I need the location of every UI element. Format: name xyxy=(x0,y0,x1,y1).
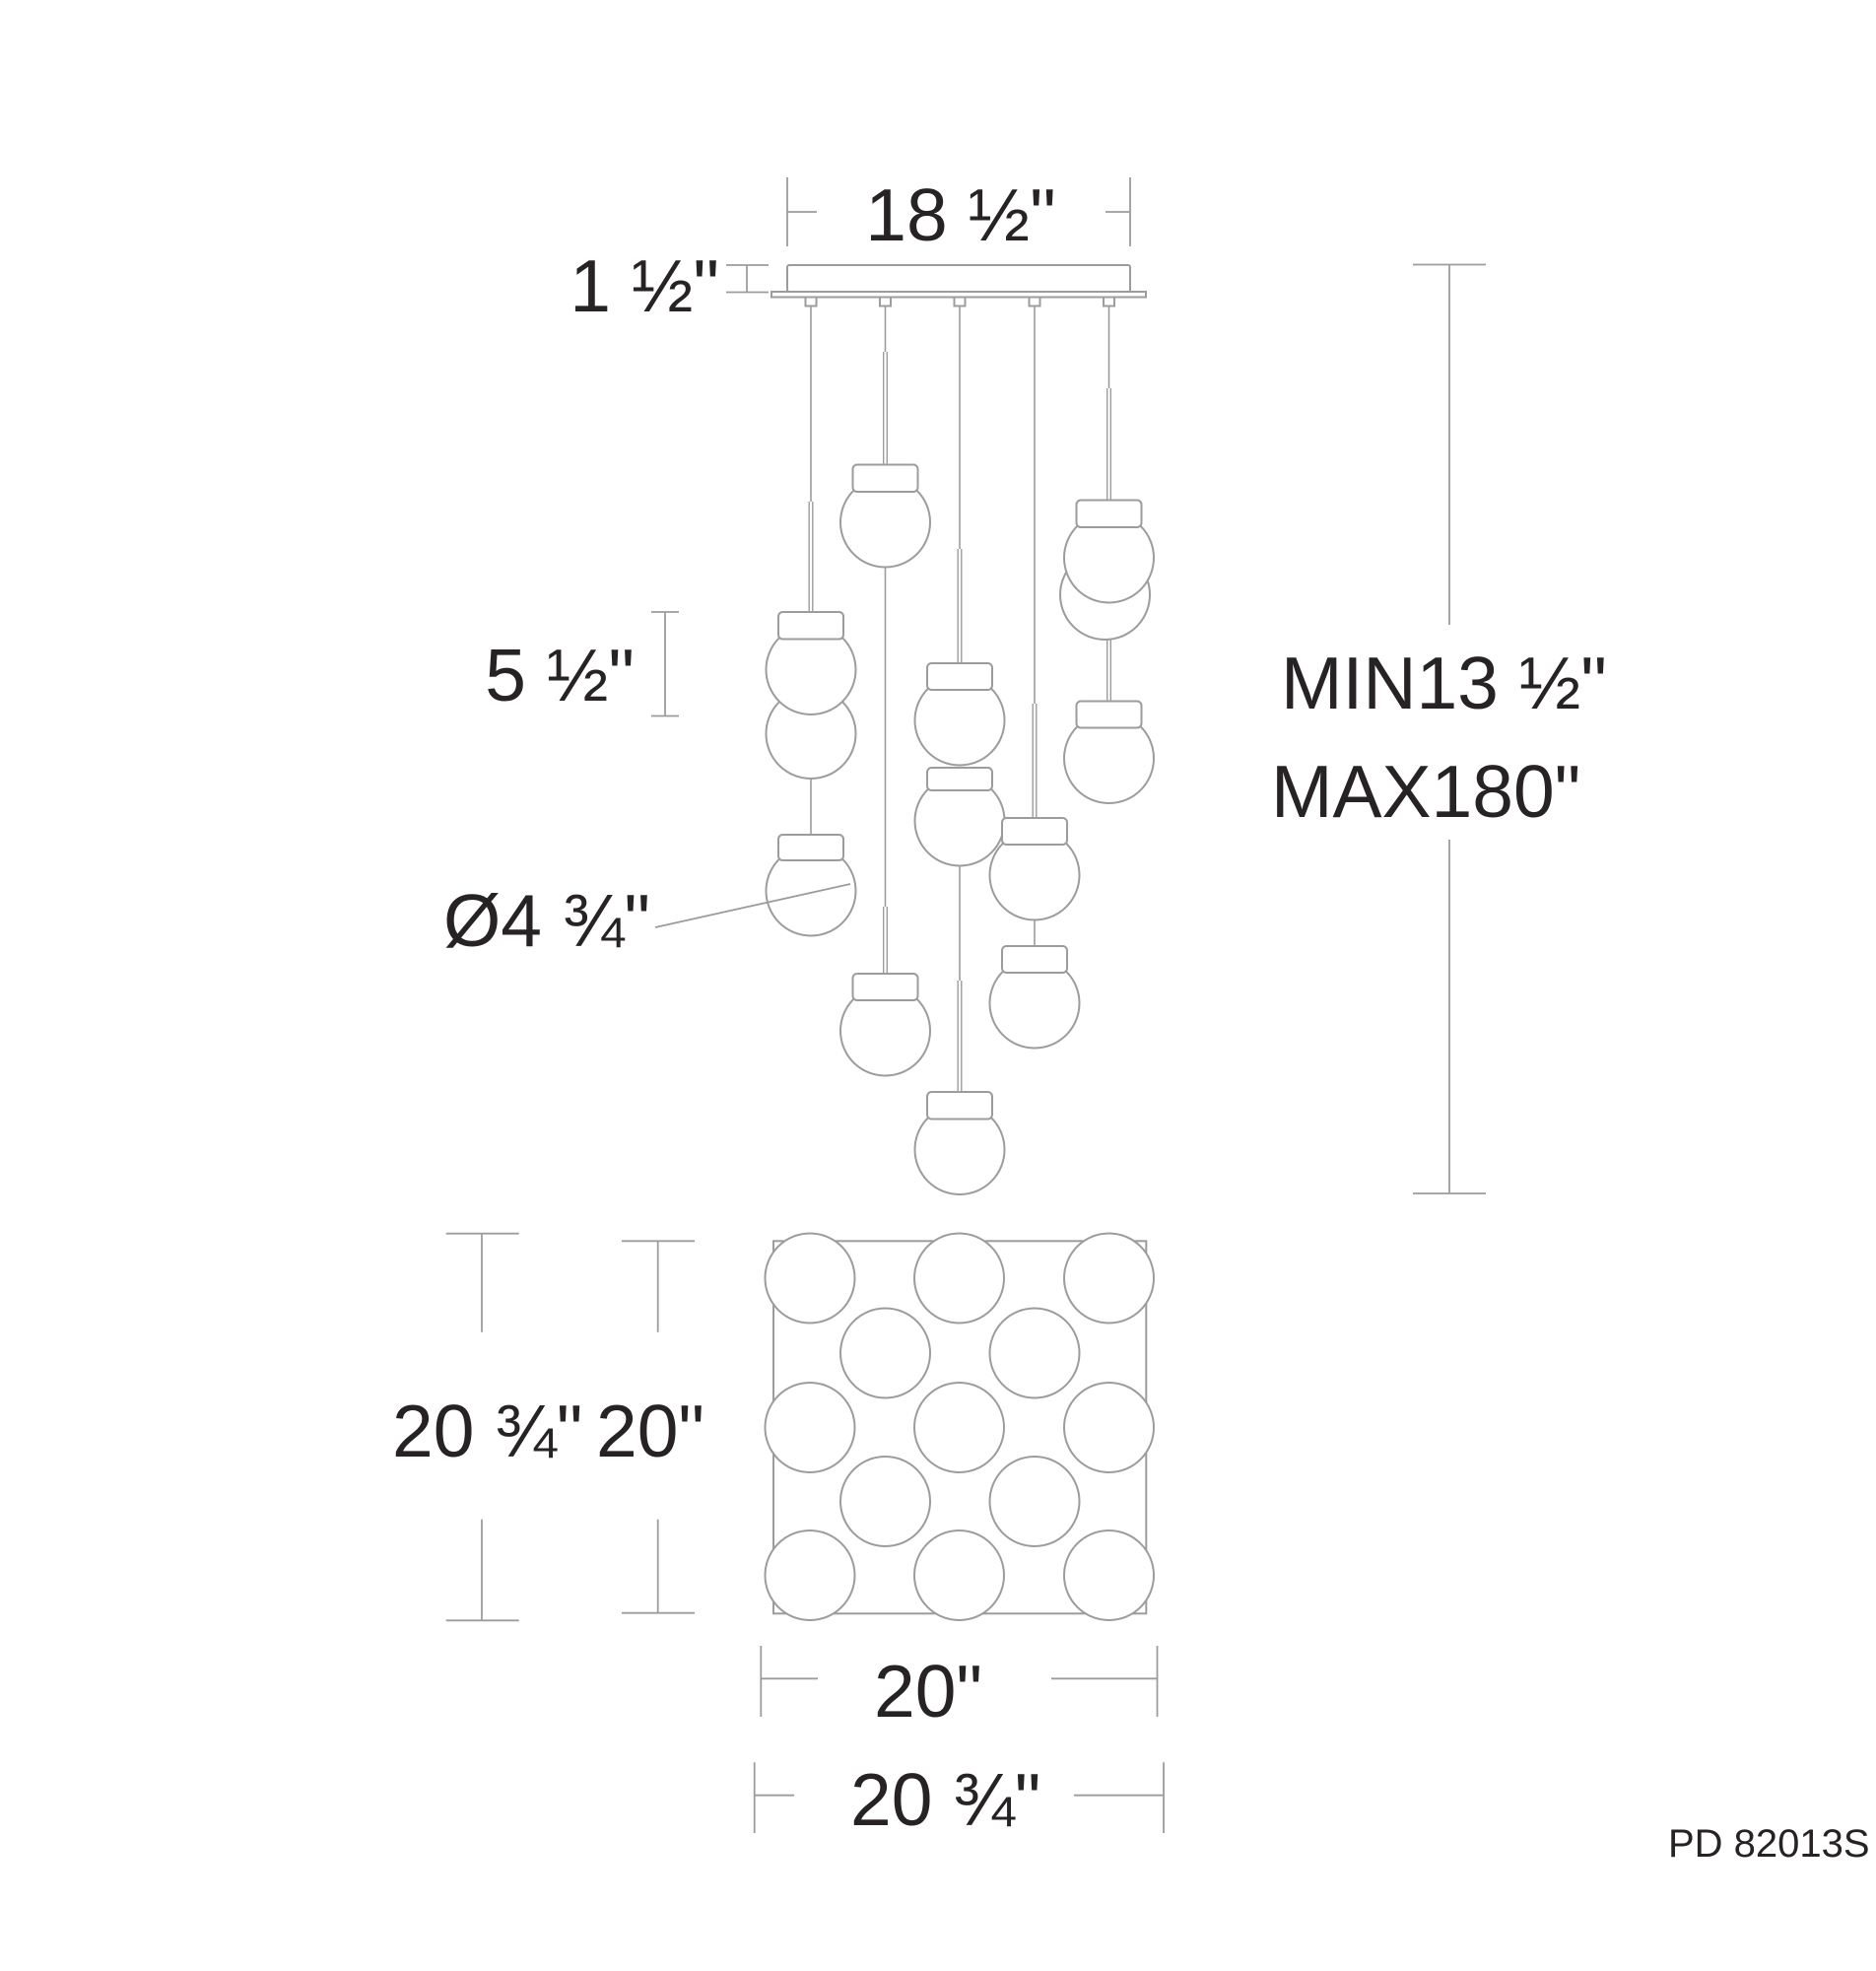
dimension-label-max-drop: MAX180" xyxy=(1271,750,1580,833)
dimension-label-plan-width-inner: 20" xyxy=(874,1650,982,1733)
pendant-single xyxy=(1064,702,1154,804)
dimension-canopy-width: 18 ½" xyxy=(787,173,1130,256)
globe-plan xyxy=(766,1530,855,1620)
canopy-front xyxy=(771,265,1146,306)
pendant-cap xyxy=(1077,702,1142,728)
dimension-canopy-height: 1 ½" xyxy=(569,244,769,327)
dimension-plan-width-outer: 20 ¾" xyxy=(755,1758,1164,1841)
dimension-pendant-height: 5 ½" xyxy=(485,612,679,716)
globe-plan xyxy=(914,1530,1004,1620)
globe-plan xyxy=(914,1234,1004,1324)
part-number: PD 82013S xyxy=(1668,1822,1870,1866)
globe-plan xyxy=(990,1457,1080,1546)
globe-plan xyxy=(1064,1530,1154,1620)
dimension-label-canopy-width: 18 ½" xyxy=(865,173,1055,256)
canopy-body xyxy=(787,265,1130,292)
pendant-cap xyxy=(778,835,843,860)
wire-gripper xyxy=(806,298,817,306)
dimension-label-plan-width-outer: 20 ¾" xyxy=(850,1758,1040,1841)
wire-gripper xyxy=(955,298,966,306)
globe-plan xyxy=(840,1457,930,1546)
pendant-single xyxy=(990,946,1080,1049)
pendant-cap xyxy=(927,768,992,790)
dimension-label-plan-height-outer: 20 ¾" xyxy=(392,1390,582,1472)
pendant-cap xyxy=(1077,501,1142,528)
spec-sheet-page: 18 ½" 1 ½" 5 ½" Ø4 ¾" MIN13 ½" MAX180" xyxy=(0,0,1876,1971)
pendant-cap xyxy=(927,663,992,690)
dimension-label-plan-height-inner: 20" xyxy=(596,1390,704,1472)
pendant-single xyxy=(915,768,1005,866)
globe-plan xyxy=(1064,1383,1154,1472)
globe-plan xyxy=(766,1383,855,1472)
pendant-cap xyxy=(778,612,843,640)
dimension-plan-height-inner: 20" xyxy=(596,1241,704,1612)
pendant-single xyxy=(840,465,930,568)
dimension-label-pendant-height: 5 ½" xyxy=(485,634,635,716)
globe-plan xyxy=(766,1234,855,1324)
pendant-cap xyxy=(853,974,918,1000)
pendant-cap xyxy=(927,1092,992,1120)
dimension-plan-height-outer: 20 ¾" xyxy=(392,1234,582,1621)
dimension-label-globe-diameter: Ø4 ¾" xyxy=(443,879,650,962)
dimension-label-canopy-height: 1 ½" xyxy=(569,244,719,327)
pendant-double xyxy=(767,612,856,779)
globe-plan xyxy=(1064,1234,1154,1324)
wire-gripper xyxy=(880,298,891,306)
globe-plan xyxy=(990,1309,1080,1398)
pendant-cap xyxy=(1002,946,1067,973)
wire-gripper xyxy=(1104,298,1114,306)
dimension-label-min-drop: MIN13 ½" xyxy=(1281,642,1607,724)
pendant-cap xyxy=(853,465,918,493)
wire-gripper xyxy=(1030,298,1040,306)
dimension-plan-width-inner: 20" xyxy=(761,1646,1157,1733)
pendant-single xyxy=(840,974,930,1076)
globe-plan xyxy=(840,1309,930,1398)
pendant-single xyxy=(990,818,1080,920)
pendant-single xyxy=(915,663,1005,766)
technical-drawing: 18 ½" 1 ½" 5 ½" Ø4 ¾" MIN13 ½" MAX180" xyxy=(0,0,1876,1971)
elevation-view xyxy=(767,265,1155,1194)
pendant-double xyxy=(1060,501,1154,641)
pendant-single xyxy=(915,1092,1005,1194)
plan-view xyxy=(766,1234,1155,1621)
pendant-cap xyxy=(1002,818,1067,845)
dimension-overall-drop: MIN13 ½" MAX180" xyxy=(1271,265,1607,1194)
globe-plan xyxy=(914,1383,1004,1472)
